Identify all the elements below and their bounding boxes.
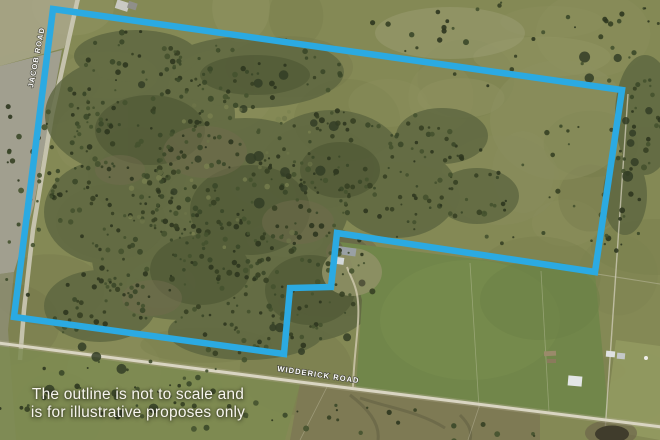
terrain-texture: [346, 128, 350, 132]
terrain-texture: [306, 83, 308, 85]
terrain-texture: [308, 162, 313, 167]
terrain-texture: [160, 92, 164, 96]
terrain-texture: [385, 207, 389, 211]
terrain-texture: [169, 223, 174, 228]
terrain-texture: [92, 242, 94, 244]
terrain-texture: [657, 22, 660, 25]
terrain-texture: [252, 172, 256, 176]
terrain-texture: [213, 351, 219, 357]
terrain-texture: [98, 121, 103, 126]
terrain-texture: [216, 220, 221, 225]
terrain-texture: [400, 204, 402, 206]
terrain-texture: [266, 257, 271, 262]
terrain-texture: [329, 301, 331, 303]
terrain-texture: [77, 312, 83, 318]
terrain-texture: [223, 94, 229, 100]
terrain-texture: [192, 184, 197, 189]
terrain-texture: [140, 219, 145, 224]
terrain-texture: [620, 244, 622, 246]
terrain-texture: [330, 111, 334, 115]
terrain-texture: [614, 54, 622, 62]
terrain-texture: [86, 166, 91, 171]
terrain-texture: [654, 123, 659, 128]
terrain-texture: [163, 219, 169, 225]
terrain-texture: [228, 166, 230, 168]
terrain-texture: [214, 189, 216, 191]
terrain-texture: [632, 125, 636, 129]
terrain-texture: [616, 156, 621, 161]
terrain-texture: [209, 163, 214, 168]
terrain-texture: [17, 179, 19, 181]
terrain-texture: [191, 426, 197, 432]
terrain-texture: [390, 155, 394, 159]
terrain-texture: [293, 160, 296, 163]
terrain-texture: [330, 134, 335, 139]
terrain-texture: [512, 236, 514, 238]
terrain-texture: [185, 241, 188, 244]
terrain-texture: [233, 297, 235, 299]
terrain-texture: [320, 69, 325, 74]
terrain-texture: [497, 3, 501, 7]
terrain-texture: [78, 342, 87, 351]
terrain-texture: [235, 152, 239, 156]
terrain-texture: [315, 166, 325, 176]
terrain-texture: [37, 228, 41, 232]
terrain-texture: [416, 185, 419, 188]
terrain-texture: [191, 232, 195, 236]
terrain-texture: [437, 178, 442, 183]
terrain-texture: [170, 238, 173, 241]
terrain-texture: [319, 223, 325, 229]
terrain-texture: [190, 178, 194, 182]
terrain-texture: [205, 369, 208, 372]
terrain-texture: [296, 314, 298, 316]
terrain-texture: [300, 179, 303, 182]
terrain-texture: [95, 112, 100, 117]
terrain-texture: [119, 39, 124, 44]
satellite-image: WIDDERICK ROAD JACOB ROAD: [0, 0, 660, 440]
terrain-texture: [70, 140, 75, 145]
terrain-texture: [481, 422, 486, 427]
terrain-texture: [192, 128, 196, 132]
terrain-texture: [648, 78, 651, 81]
farm-structure: [544, 351, 556, 357]
terrain-texture: [485, 235, 489, 239]
terrain-texture: [105, 299, 108, 302]
terrain-texture: [251, 105, 255, 109]
terrain-texture: [259, 161, 263, 165]
terrain-texture: [91, 352, 101, 362]
terrain-texture: [72, 92, 76, 96]
terrain-texture: [335, 283, 338, 286]
terrain-texture: [206, 347, 211, 352]
terrain-texture: [190, 79, 193, 82]
terrain-texture: [139, 30, 142, 33]
terrain-texture: [622, 171, 633, 182]
terrain-texture: [103, 310, 107, 314]
terrain-texture: [209, 314, 212, 317]
terrain-texture: [396, 236, 398, 238]
terrain-texture: [223, 322, 226, 325]
terrain-texture: [232, 260, 237, 265]
terrain-texture: [213, 136, 216, 139]
terrain-texture: [174, 50, 177, 53]
terrain-texture: [182, 134, 185, 137]
terrain-texture: [87, 87, 91, 91]
terrain-texture: [254, 79, 263, 88]
terrain-texture: [131, 53, 134, 56]
terrain-texture: [195, 156, 202, 163]
terrain-texture: [209, 71, 212, 74]
terrain-texture: [254, 198, 265, 209]
terrain-texture: [164, 54, 170, 60]
terrain-texture: [308, 152, 311, 155]
terrain-texture: [581, 62, 584, 65]
terrain-texture: [389, 145, 394, 150]
terrain-texture: [114, 89, 116, 91]
terrain-texture: [505, 200, 507, 202]
terrain-texture: [196, 228, 202, 234]
terrain-texture: [367, 183, 373, 189]
terrain-texture: [579, 52, 590, 63]
terrain-texture: [305, 305, 309, 309]
terrain-texture: [315, 115, 319, 119]
terrain-texture: [614, 248, 619, 253]
terrain-texture: [622, 117, 629, 124]
terrain-texture: [598, 34, 603, 39]
terrain-texture: [285, 183, 289, 187]
grass-patch: [375, 7, 525, 59]
terrain-texture: [169, 289, 172, 292]
terrain-texture: [173, 211, 178, 216]
terrain-texture: [326, 261, 331, 266]
terrain-texture: [390, 207, 395, 212]
terrain-texture: [463, 39, 469, 45]
terrain-texture: [183, 259, 186, 262]
terrain-texture: [201, 314, 204, 317]
terrain-texture: [117, 364, 127, 374]
terrain-texture: [440, 195, 444, 199]
terrain-texture: [344, 312, 346, 314]
terrain-texture: [319, 129, 322, 132]
terrain-texture: [110, 59, 116, 65]
terrain-texture: [428, 126, 431, 129]
terrain-texture: [70, 208, 75, 213]
terrain-texture: [305, 56, 308, 59]
terrain-texture: [255, 272, 260, 277]
terrain-texture: [133, 237, 138, 242]
terrain-texture: [204, 425, 210, 431]
terrain-texture: [252, 277, 256, 281]
terrain-texture: [171, 170, 176, 175]
terrain-texture: [628, 56, 630, 58]
terrain-texture: [86, 186, 89, 189]
terrain-texture: [105, 248, 110, 253]
terrain-texture: [199, 254, 204, 259]
terrain-texture: [16, 134, 22, 140]
terrain-texture: [411, 147, 414, 150]
terrain-texture: [127, 166, 130, 169]
terrain-texture: [107, 234, 109, 236]
terrain-texture: [297, 306, 301, 310]
terrain-texture: [631, 110, 634, 113]
terrain-texture: [223, 237, 228, 242]
terrain-texture: [283, 190, 288, 195]
terrain-texture: [77, 207, 82, 212]
terrain-texture: [276, 154, 280, 158]
terrain-texture: [286, 238, 291, 243]
terrain-texture: [71, 113, 75, 117]
terrain-texture: [359, 431, 363, 435]
terrain-texture: [343, 333, 351, 341]
terrain-texture: [316, 212, 319, 215]
terrain-texture: [448, 172, 453, 177]
terrain-texture: [192, 103, 196, 107]
terrain-texture: [86, 150, 88, 152]
terrain-texture: [176, 205, 181, 210]
terrain-texture: [303, 426, 309, 432]
terrain-texture: [629, 130, 636, 137]
terrain-texture: [185, 197, 191, 203]
terrain-texture: [8, 115, 12, 119]
terrain-texture: [183, 377, 186, 380]
terrain-texture: [233, 103, 238, 108]
terrain-texture: [98, 248, 101, 251]
terrain-texture: [20, 406, 24, 410]
terrain-texture: [257, 259, 262, 264]
terrain-texture: [287, 152, 290, 155]
terrain-texture: [635, 82, 640, 87]
terrain-texture: [110, 224, 113, 227]
shed-roof: [568, 375, 583, 386]
terrain-texture: [129, 294, 134, 299]
terrain-texture: [230, 323, 234, 327]
terrain-texture: [253, 400, 259, 406]
terrain-texture: [118, 249, 124, 255]
terrain-texture: [292, 164, 295, 167]
terrain-texture: [106, 198, 109, 201]
terrain-texture: [258, 62, 261, 65]
terrain-texture: [434, 181, 437, 184]
terrain-texture: [158, 133, 163, 138]
terrain-texture: [619, 207, 625, 213]
terrain-texture: [638, 198, 642, 202]
terrain-texture: [413, 408, 417, 412]
terrain-texture: [257, 340, 262, 345]
white-speck: [644, 356, 648, 360]
terrain-texture: [585, 73, 594, 82]
terrain-texture: [398, 142, 404, 148]
terrain-texture: [619, 11, 624, 16]
terrain-texture: [175, 321, 177, 323]
terrain-texture: [400, 171, 402, 173]
terrain-texture: [192, 307, 197, 312]
terrain-texture: [74, 167, 77, 170]
terrain-texture: [445, 19, 449, 23]
terrain-texture: [327, 157, 331, 161]
terrain-texture: [160, 231, 162, 233]
terrain-texture: [227, 302, 230, 305]
terrain-texture: [235, 326, 238, 329]
terrain-texture: [145, 317, 148, 320]
farm-structure: [547, 359, 556, 363]
terrain-texture: [207, 257, 212, 262]
terrain-texture: [226, 89, 230, 93]
terrain-texture: [207, 140, 210, 143]
terrain-texture: [123, 62, 129, 68]
terrain-texture: [50, 145, 54, 149]
terrain-texture: [285, 225, 288, 228]
terrain-texture: [283, 413, 288, 418]
terrain-texture: [336, 409, 338, 411]
terrain-texture: [182, 268, 186, 272]
terrain-texture: [388, 167, 390, 169]
terrain-texture: [541, 30, 545, 34]
terrain-texture: [6, 104, 11, 109]
terrain-texture: [444, 137, 448, 141]
disclaimer-line-2: is for illustrative proposes only: [24, 404, 252, 422]
terrain-texture: [310, 181, 314, 185]
terrain-texture: [26, 293, 30, 297]
terrain-texture: [122, 100, 127, 105]
terrain-texture: [195, 375, 201, 381]
terrain-texture: [316, 263, 320, 267]
terrain-texture: [202, 73, 205, 76]
terrain-texture: [308, 131, 311, 134]
terrain-texture: [310, 119, 318, 127]
terrain-texture: [249, 264, 253, 268]
terrain-texture: [263, 232, 266, 235]
terrain-texture: [92, 106, 95, 109]
terrain-texture: [311, 156, 314, 159]
terrain-texture: [77, 132, 81, 136]
terrain-texture: [413, 113, 417, 117]
terrain-texture: [300, 335, 305, 340]
terrain-texture: [145, 79, 147, 81]
terrain-texture: [307, 259, 311, 263]
terrain-texture: [197, 145, 203, 151]
terrain-texture: [348, 252, 350, 254]
terrain-texture: [533, 435, 535, 437]
terrain-texture: [58, 218, 63, 223]
terrain-texture: [188, 119, 193, 124]
terrain-texture: [618, 217, 622, 221]
terrain-texture: [332, 224, 336, 228]
terrain-texture: [70, 152, 73, 155]
terrain-texture: [270, 95, 275, 100]
terrain-texture: [182, 119, 186, 123]
terrain-texture: [215, 368, 217, 370]
terrain-texture: [443, 158, 447, 162]
terrain-texture: [130, 243, 135, 248]
terrain-texture: [348, 193, 351, 196]
terrain-texture: [94, 319, 100, 325]
terrain-texture: [247, 310, 251, 314]
terrain-texture: [87, 144, 93, 150]
terrain-texture: [395, 133, 399, 137]
terrain-texture: [236, 264, 240, 268]
terrain-texture: [159, 147, 162, 150]
terrain-texture: [521, 164, 524, 167]
terrain-texture: [297, 235, 302, 240]
terrain-texture: [300, 258, 304, 262]
terrain-texture: [605, 234, 609, 238]
terrain-texture: [103, 321, 108, 326]
terrain-texture: [215, 269, 220, 274]
terrain-texture: [641, 164, 647, 170]
terrain-texture: [181, 316, 183, 318]
terrain-texture: [245, 153, 256, 164]
terrain-texture: [280, 167, 290, 177]
terrain-texture: [465, 198, 468, 201]
terrain-texture: [628, 191, 633, 196]
terrain-texture: [236, 330, 240, 334]
terrain-texture: [271, 419, 273, 421]
terrain-texture: [77, 125, 81, 129]
terrain-texture: [377, 214, 382, 219]
terrain-texture: [617, 19, 622, 24]
terrain-texture: [430, 132, 435, 137]
terrain-texture: [453, 72, 457, 76]
terrain-texture: [566, 129, 569, 132]
terrain-texture: [89, 314, 93, 318]
terrain-texture: [647, 20, 649, 22]
terrain-texture: [243, 268, 249, 274]
terrain-texture: [479, 148, 482, 151]
terrain-texture: [313, 232, 318, 237]
terrain-texture: [481, 211, 487, 217]
terrain-texture: [191, 224, 196, 229]
terrain-texture: [76, 130, 78, 132]
terrain-texture: [141, 210, 145, 214]
terrain-texture: [101, 258, 104, 261]
terrain-texture: [646, 142, 651, 147]
terrain-texture: [223, 100, 226, 103]
terrain-texture: [246, 259, 251, 264]
terrain-texture: [429, 206, 432, 209]
terrain-texture: [46, 109, 51, 114]
terrain-texture: [500, 1, 502, 3]
terrain-texture: [573, 205, 576, 208]
terrain-texture: [610, 46, 614, 50]
terrain-texture: [451, 142, 456, 147]
terrain-texture: [337, 63, 341, 67]
terrain-texture: [51, 189, 55, 193]
terrain-texture: [233, 79, 237, 83]
terrain-texture: [267, 337, 270, 340]
terrain-texture: [109, 289, 112, 292]
terrain-texture: [202, 80, 207, 85]
terrain-texture: [550, 153, 555, 158]
terrain-texture: [318, 323, 322, 327]
terrain-texture: [204, 121, 209, 126]
terrain-texture: [148, 196, 150, 198]
terrain-texture: [104, 129, 110, 135]
terrain-texture: [363, 262, 365, 264]
terrain-texture: [209, 265, 214, 270]
terrain-texture: [292, 172, 297, 177]
terrain-texture: [95, 194, 98, 197]
terrain-texture: [66, 283, 70, 287]
shed-roof: [606, 351, 615, 358]
terrain-texture: [643, 79, 647, 83]
terrain-texture: [307, 208, 312, 213]
terrain-texture: [179, 95, 183, 99]
terrain-texture: [337, 71, 342, 76]
terrain-texture: [174, 254, 178, 258]
terrain-texture: [248, 178, 252, 182]
terrain-texture: [108, 203, 112, 207]
